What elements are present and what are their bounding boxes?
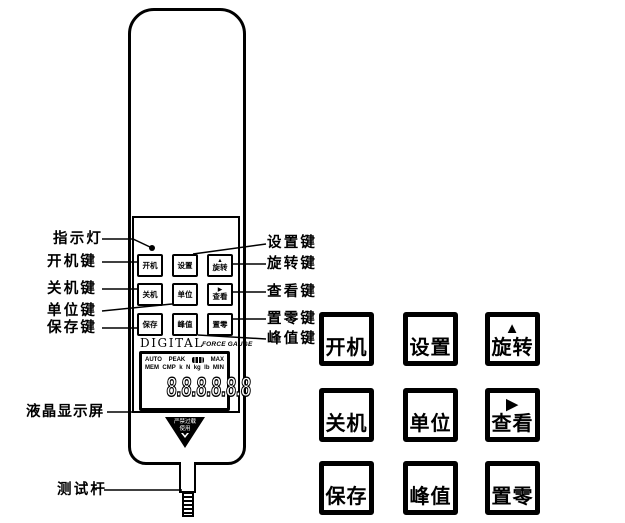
key-button-unit[interactable]: 单位 — [403, 388, 458, 442]
key-button-view-label: 查看 — [492, 413, 534, 435]
device-key-save: 保存 — [137, 313, 163, 336]
lcd-unit-k: k — [179, 364, 182, 372]
key-button-power-on[interactable]: 开机 — [319, 312, 374, 366]
lcd-cmp: CMP — [162, 364, 175, 372]
key-button-view[interactable]: ▶ 查看 — [485, 388, 540, 442]
lcd-display: AUTO PEAK MAX MEM CMP k N kg lb MIN 8.8.… — [139, 351, 230, 411]
device-key-zero-label: 置零 — [213, 321, 228, 329]
device-key-power-on-label: 开机 — [143, 262, 158, 270]
key-button-power-off-label: 关机 — [326, 413, 368, 435]
callout-set-key: 设置键 — [267, 236, 317, 251]
lcd-unit-n: N — [186, 364, 190, 372]
key-button-zero[interactable]: 置零 — [485, 461, 540, 515]
key-button-peak[interactable]: 峰值 — [403, 461, 458, 515]
force-gauge-diagram: 开机 设置 ▲ 旋转 关机 单位 ▶ 查看 保存 峰值 置零 DIGITAL F… — [0, 0, 625, 523]
lcd-unit-lb: lb — [204, 364, 209, 372]
callout-peak-key: 峰值键 — [267, 332, 317, 347]
callout-save-key: 保存键 — [47, 321, 97, 336]
device-key-power-on: 开机 — [137, 254, 163, 277]
lcd-unit-kg: kg — [194, 364, 201, 372]
lcd-max: MAX — [211, 356, 224, 364]
callout-zero-key: 置零键 — [267, 312, 317, 327]
lcd-auto: AUTO — [145, 356, 162, 364]
battery-icon — [192, 357, 204, 363]
warning-text-line2: 使用 — [179, 426, 190, 432]
key-button-power-off[interactable]: 关机 — [319, 388, 374, 442]
key-button-set[interactable]: 设置 — [403, 312, 458, 366]
brand-text: DIGITAL — [140, 336, 204, 350]
key-button-zero-label: 置零 — [492, 486, 534, 508]
device-key-unit: 单位 — [172, 283, 198, 306]
callout-test-rod: 测试杆 — [57, 483, 107, 498]
warning-tip-mark — [181, 433, 189, 438]
key-button-power-on-label: 开机 — [326, 337, 368, 359]
callout-view-key: 查看键 — [267, 285, 317, 300]
up-triangle-icon: ▲ — [505, 321, 521, 336]
device-key-save-label: 保存 — [143, 321, 158, 329]
device-neck — [179, 462, 196, 493]
lcd-mem: MEM — [145, 364, 159, 372]
device-key-peak: 峰值 — [172, 313, 198, 336]
device-key-power-off: 关机 — [137, 283, 163, 306]
callout-power-off-key: 关机键 — [47, 282, 97, 297]
callout-rotate-key: 旋转键 — [267, 257, 317, 272]
lcd-digit-readout: 8.8.8.8.8.8 — [145, 372, 224, 403]
key-button-peak-label: 峰值 — [410, 486, 452, 508]
key-button-save[interactable]: 保存 — [319, 461, 374, 515]
device-key-set-label: 设置 — [178, 262, 193, 270]
key-button-rotate-label: 旋转 — [492, 337, 534, 359]
product-text: FORCE GAUGE — [202, 341, 253, 349]
warning-text-line1: 严禁过载 — [174, 419, 196, 426]
device-key-peak-label: 峰值 — [178, 321, 193, 329]
key-button-save-label: 保存 — [326, 486, 368, 508]
right-triangle-icon: ▶ — [506, 397, 519, 412]
test-rod — [182, 492, 194, 517]
device-key-view: ▶ 查看 — [207, 283, 233, 306]
device-key-power-off-label: 关机 — [143, 291, 158, 299]
device-key-rotate: ▲ 旋转 — [207, 254, 233, 277]
key-button-rotate[interactable]: ▲ 旋转 — [485, 312, 540, 366]
key-button-unit-label: 单位 — [410, 413, 452, 435]
lcd-min: MIN — [213, 364, 224, 372]
device-key-set: 设置 — [172, 254, 198, 277]
key-button-set-label: 设置 — [410, 337, 452, 359]
lcd-annunciator-row-1: AUTO PEAK MAX — [145, 356, 224, 364]
device-key-unit-label: 单位 — [178, 291, 193, 299]
device-key-view-label: 查看 — [213, 293, 228, 301]
lcd-annunciator-row-2: MEM CMP k N kg lb MIN — [145, 364, 224, 372]
callout-power-on-key: 开机键 — [47, 255, 97, 270]
lcd-peak: PEAK — [169, 356, 186, 364]
device-key-rotate-label: 旋转 — [213, 264, 228, 272]
callout-lcd-screen: 液晶显示屏 — [26, 405, 105, 420]
callout-unit-key: 单位键 — [47, 304, 97, 319]
callout-indicator-light: 指示灯 — [53, 232, 103, 247]
device-key-zero: 置零 — [207, 313, 233, 336]
lcd-digits-text: 8.8.8.8.8.8 — [166, 372, 251, 403]
